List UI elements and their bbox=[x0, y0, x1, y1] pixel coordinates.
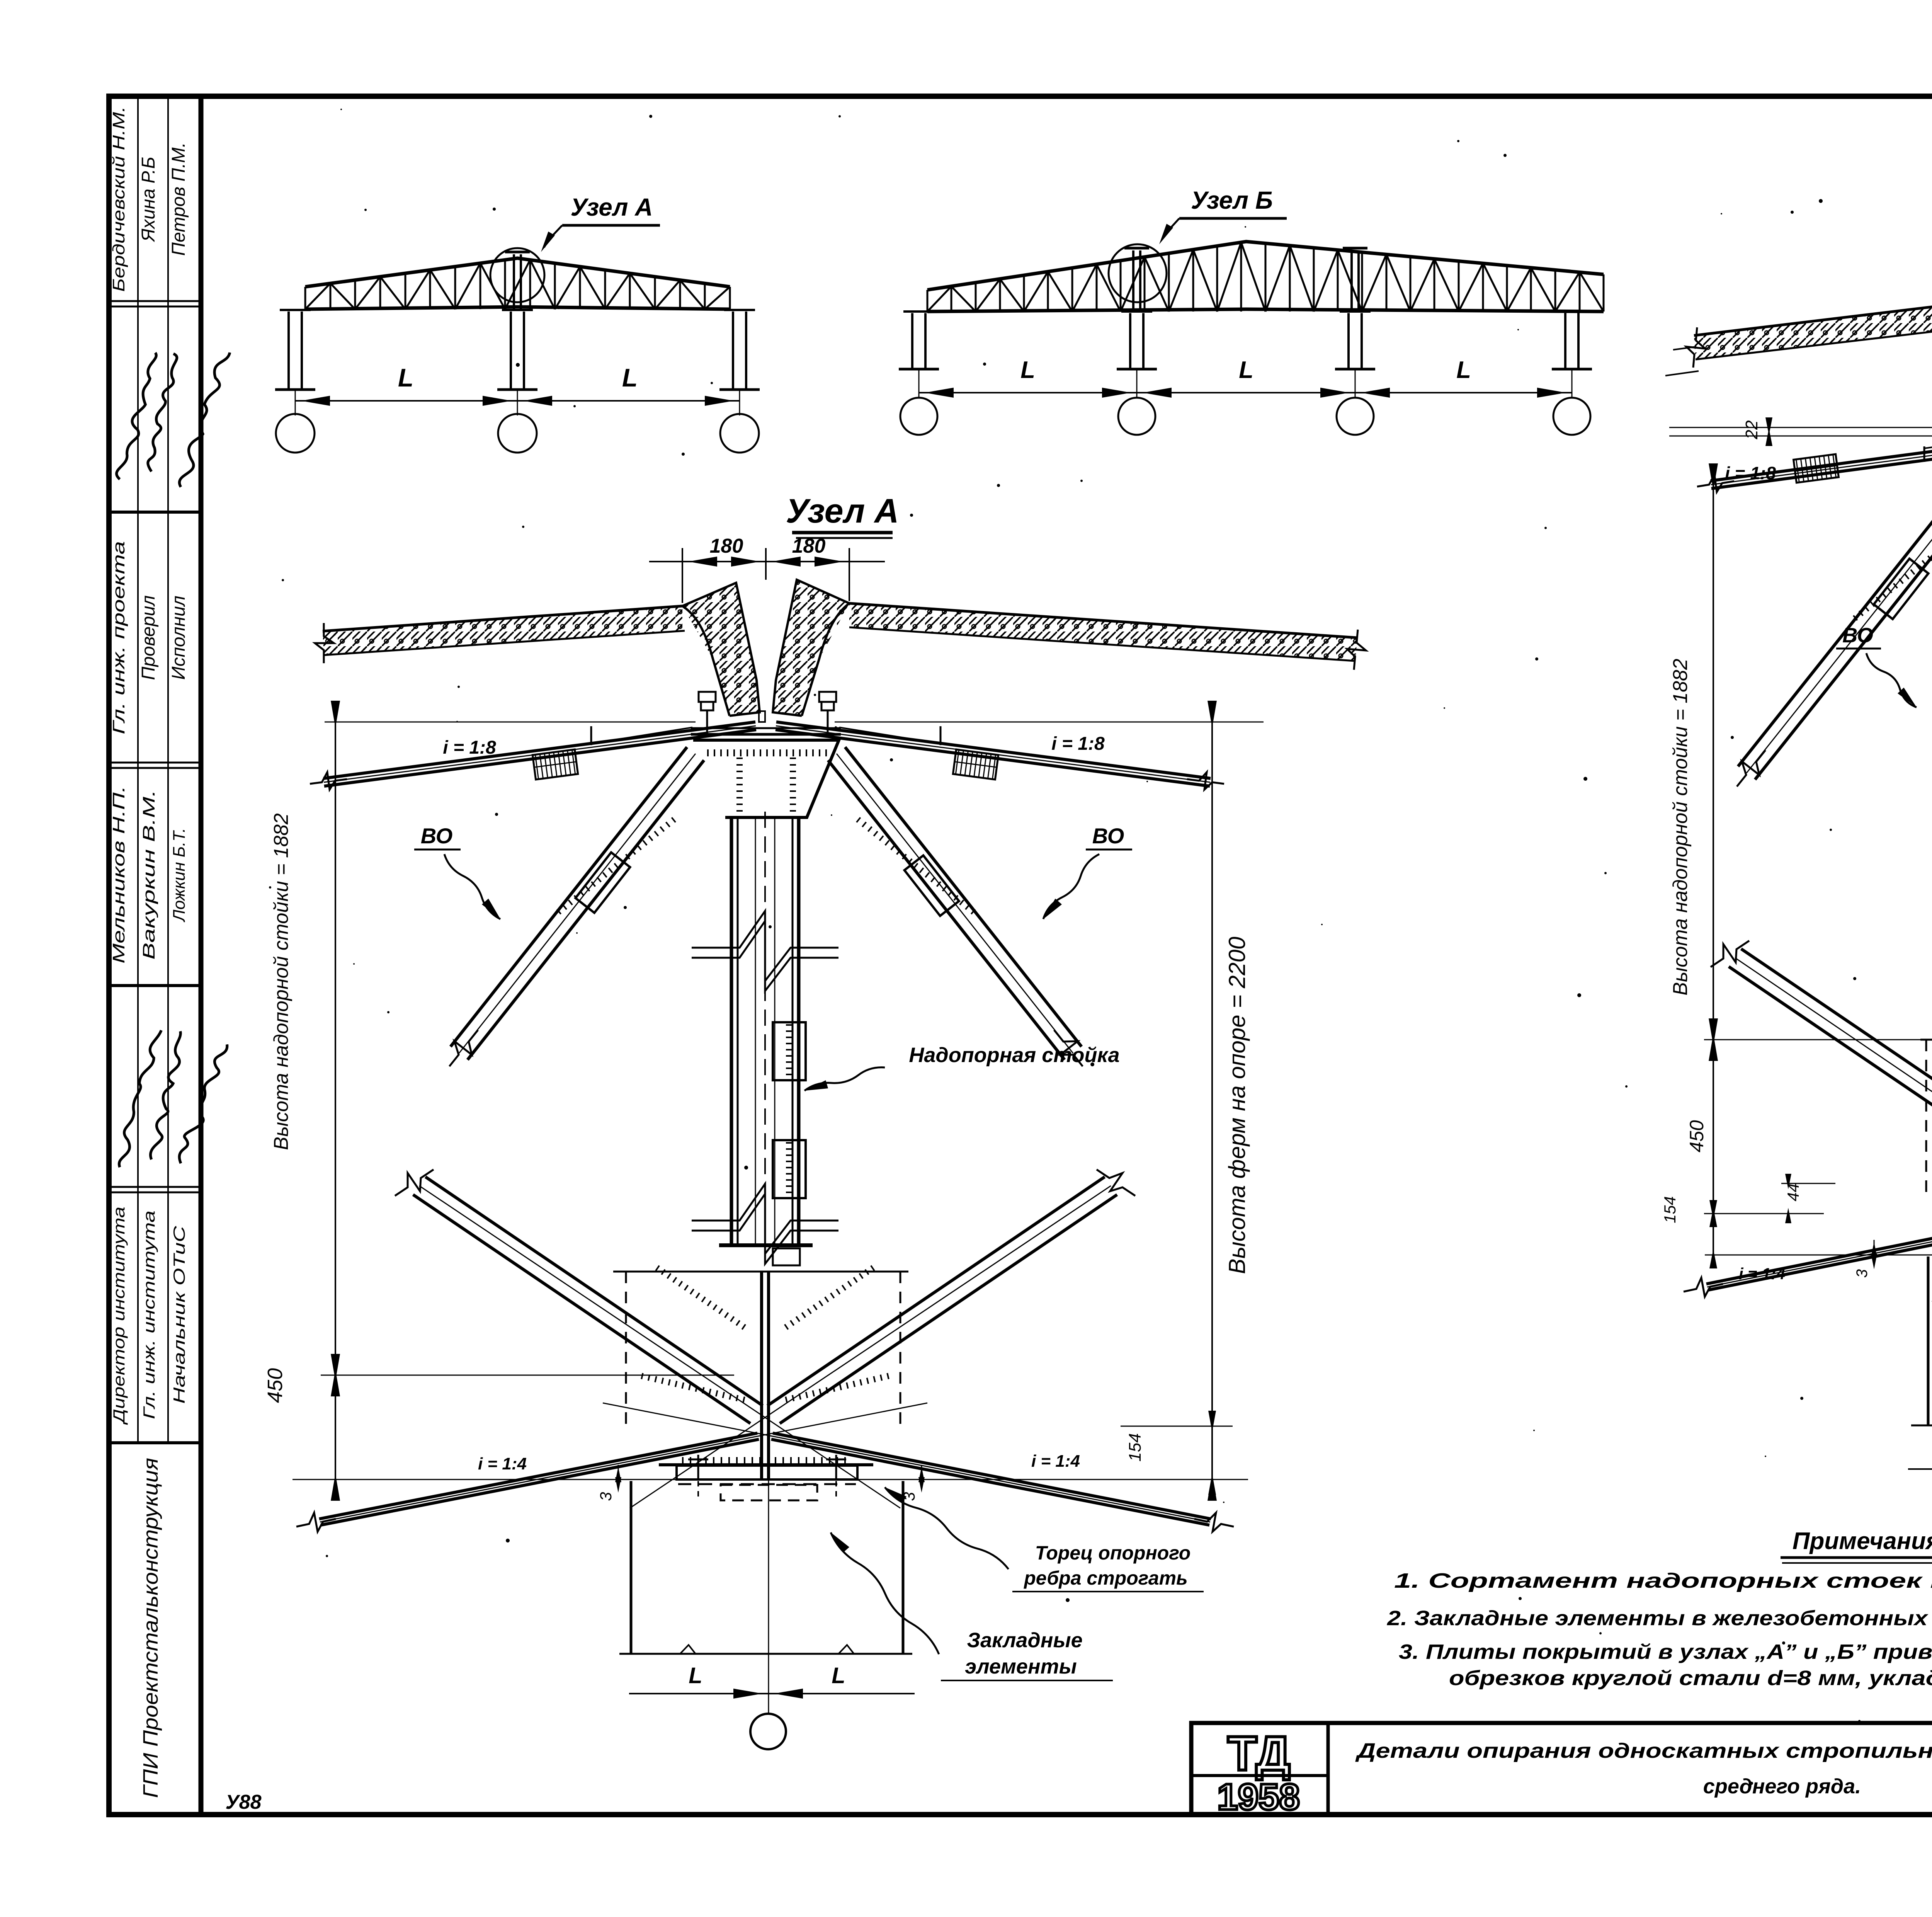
svg-text:среднего ряда.: среднего ряда. bbox=[1703, 1775, 1861, 1798]
svg-text:Гл. инж. проекта: Гл. инж. проекта bbox=[109, 541, 128, 734]
svg-text:ГПИ Проектстальконструкция: ГПИ Проектстальконструкция bbox=[139, 1458, 162, 1798]
svg-text:1958: 1958 bbox=[1217, 1776, 1300, 1818]
svg-text:Проверил: Проверил bbox=[138, 595, 159, 680]
svg-text:обрезков круглой стали d=8: обрезков круглой стали d=8 мм, укладывае… bbox=[1449, 1667, 1932, 1690]
svg-text:i = 1:8: i = 1:8 bbox=[443, 737, 496, 758]
svg-text:Гл. инж. института: Гл. инж. института bbox=[140, 1210, 158, 1419]
svg-text:Высота ферм на опоре = 2200: Высота ферм на опоре = 2200 bbox=[1224, 937, 1250, 1274]
svg-text:ВО: ВО bbox=[1842, 624, 1873, 647]
svg-text:i = 1:4: i = 1:4 bbox=[478, 1454, 527, 1473]
svg-text:154: 154 bbox=[1126, 1433, 1145, 1461]
svg-text:3: 3 bbox=[597, 1492, 615, 1501]
svg-text:Вакуркин В.М.: Вакуркин В.М. bbox=[139, 790, 158, 960]
svg-text:450: 450 bbox=[264, 1368, 287, 1403]
svg-text:У88: У88 bbox=[225, 1791, 261, 1813]
svg-text:ВО: ВО bbox=[1092, 824, 1124, 848]
svg-text:2. Закладные элементы в желе: 2. Закладные элементы в железобетонных к… bbox=[1387, 1607, 1932, 1630]
svg-text:L: L bbox=[622, 363, 638, 392]
svg-text:Надопорная стойка: Надопорная стойка bbox=[909, 1044, 1119, 1067]
svg-text:Бердичевский Н.М.: Бердичевский Н.М. bbox=[109, 106, 128, 292]
svg-text:i = 1:4: i = 1:4 bbox=[1031, 1452, 1080, 1471]
svg-text:Узел А: Узел А bbox=[571, 193, 653, 221]
svg-text:44: 44 bbox=[1784, 1183, 1802, 1202]
svg-text:L: L bbox=[832, 1663, 845, 1688]
svg-text:L: L bbox=[1020, 357, 1035, 383]
svg-text:180: 180 bbox=[710, 535, 743, 557]
svg-text:Ложкин Б.Т.: Ложкин Б.Т. bbox=[170, 828, 189, 923]
svg-text:ребра строгать: ребра строгать bbox=[1023, 1567, 1188, 1589]
svg-text:154: 154 bbox=[1661, 1196, 1679, 1223]
svg-text:Директор института: Директор института bbox=[110, 1207, 128, 1425]
svg-text:L: L bbox=[398, 363, 413, 392]
svg-text:ВО: ВО bbox=[421, 824, 453, 848]
svg-text:Высота надопорной стойки = 1: Высота надопорной стойки = 1882 bbox=[1669, 659, 1692, 996]
svg-text:L: L bbox=[689, 1663, 702, 1688]
svg-text:Узел Б: Узел Б bbox=[1191, 186, 1273, 214]
svg-text:22: 22 bbox=[1742, 421, 1761, 440]
svg-text:L: L bbox=[1239, 357, 1253, 383]
svg-text:ТД: ТД bbox=[1228, 1727, 1290, 1781]
svg-text:i = 1:8: i = 1:8 bbox=[1725, 463, 1776, 483]
svg-text:Узел А: Узел А bbox=[786, 492, 899, 530]
svg-text:Исполнил: Исполнил bbox=[168, 596, 189, 680]
svg-text:i = 1:8: i = 1:8 bbox=[1051, 734, 1105, 754]
svg-text:Примечания:: Примечания: bbox=[1793, 1528, 1932, 1554]
svg-text:Мельников Н.П.: Мельников Н.П. bbox=[109, 786, 128, 964]
svg-text:Начальник ОТиС: Начальник ОТиС bbox=[170, 1226, 188, 1404]
svg-text:элементы: элементы bbox=[965, 1655, 1077, 1678]
svg-text:Яхина Р.Б: Яхина Р.Б bbox=[138, 157, 159, 243]
svg-text:1. Сортамент надопорных ст: 1. Сортамент надопорных стоек на листе 2… bbox=[1394, 1569, 1932, 1592]
svg-text:Закладные: Закладные bbox=[967, 1629, 1082, 1652]
svg-text:Детали опирания односкатных с: Детали опирания односкатных стропильных … bbox=[1355, 1739, 1932, 1762]
svg-text:3: 3 bbox=[1854, 1269, 1871, 1278]
svg-text:Торец опорного: Торец опорного bbox=[1035, 1542, 1191, 1564]
svg-text:180: 180 bbox=[792, 535, 826, 557]
svg-text:Высота надопорной стойки = 1: Высота надопорной стойки = 1882 bbox=[270, 813, 293, 1150]
svg-text:3. Плиты покрытий в узлах „: 3. Плиты покрытий в узлах „А” и „Б” прив… bbox=[1399, 1640, 1932, 1663]
svg-text:i = 1:4: i = 1:4 bbox=[1739, 1265, 1785, 1283]
svg-text:Петров П.М.: Петров П.М. bbox=[168, 142, 189, 256]
svg-text:L: L bbox=[1456, 357, 1471, 383]
svg-text:450: 450 bbox=[1686, 1120, 1708, 1153]
